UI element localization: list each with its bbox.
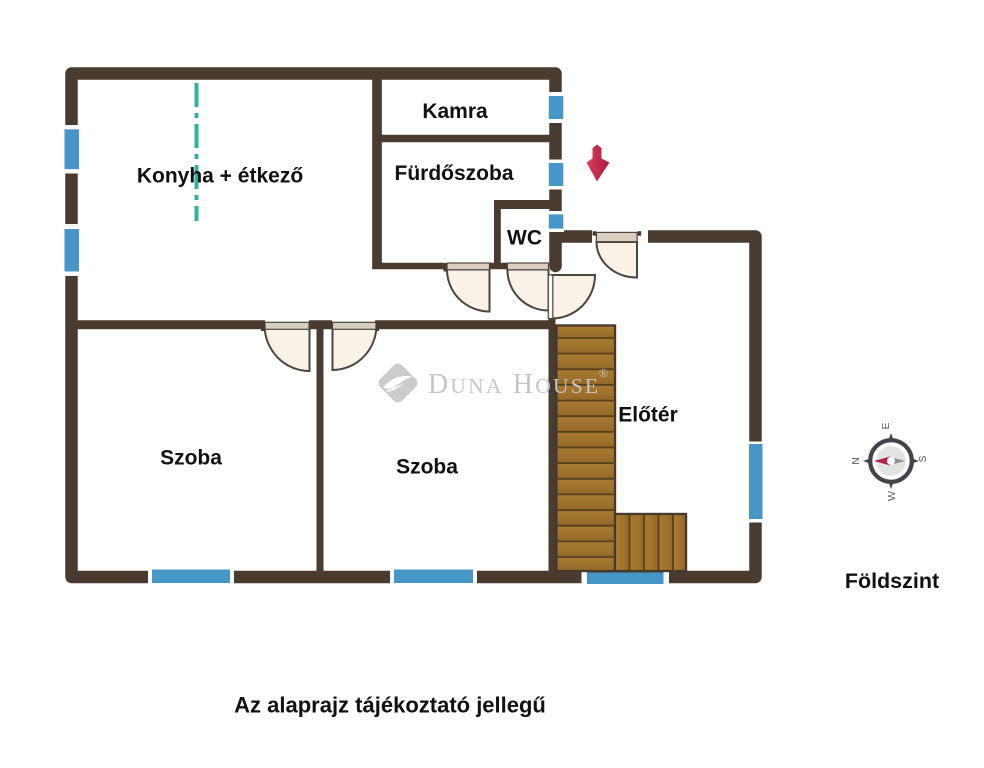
svg-text:Szoba: Szoba [396,456,458,479]
svg-text:S: S [917,455,929,462]
svg-text:Az alaprajz tájékoztató jelleg: Az alaprajz tájékoztató jellegű [234,693,546,718]
svg-text:Előtér: Előtér [618,404,678,427]
svg-text:WC: WC [507,227,542,250]
svg-text:Konyha + étkező: Konyha + étkező [137,165,303,188]
svg-text:DUNA HOUSE: DUNA HOUSE [428,369,600,400]
svg-text:Szoba: Szoba [160,447,222,470]
svg-text:N: N [850,457,862,465]
svg-text:Kamra: Kamra [422,100,488,123]
svg-text:®: ® [599,366,608,380]
svg-text:Földszint: Földszint [845,569,939,593]
svg-text:E: E [880,422,892,429]
svg-text:W: W [886,491,898,501]
svg-text:Fürdőszoba: Fürdőszoba [395,162,514,185]
